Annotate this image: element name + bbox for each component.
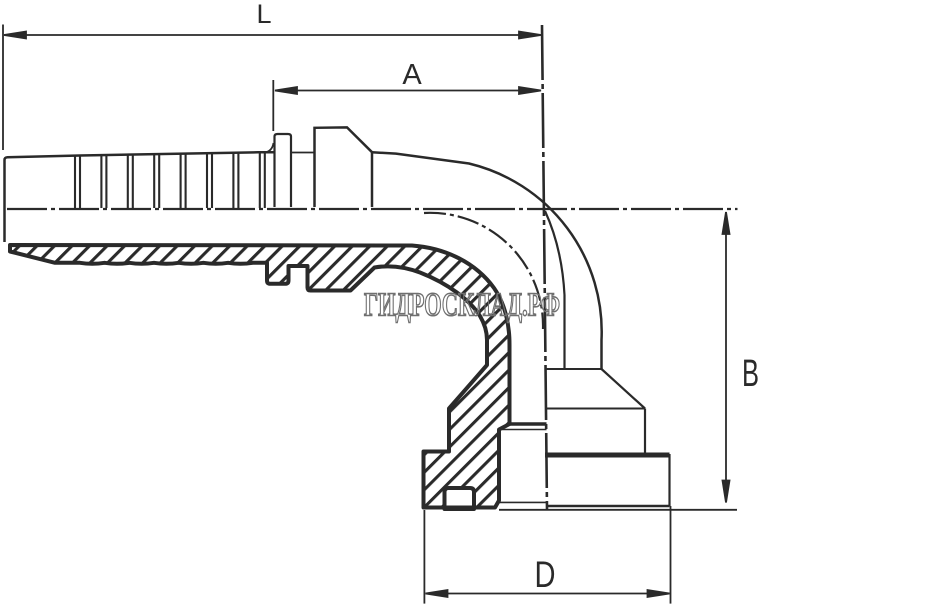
svg-text:L: L [256,0,271,29]
svg-text:A: A [402,59,422,91]
svg-text:B: B [742,353,759,395]
svg-text:D: D [535,554,556,595]
svg-text:ГИДРОСКЛАД.РФ: ГИДРОСКЛАД.РФ [364,287,560,324]
